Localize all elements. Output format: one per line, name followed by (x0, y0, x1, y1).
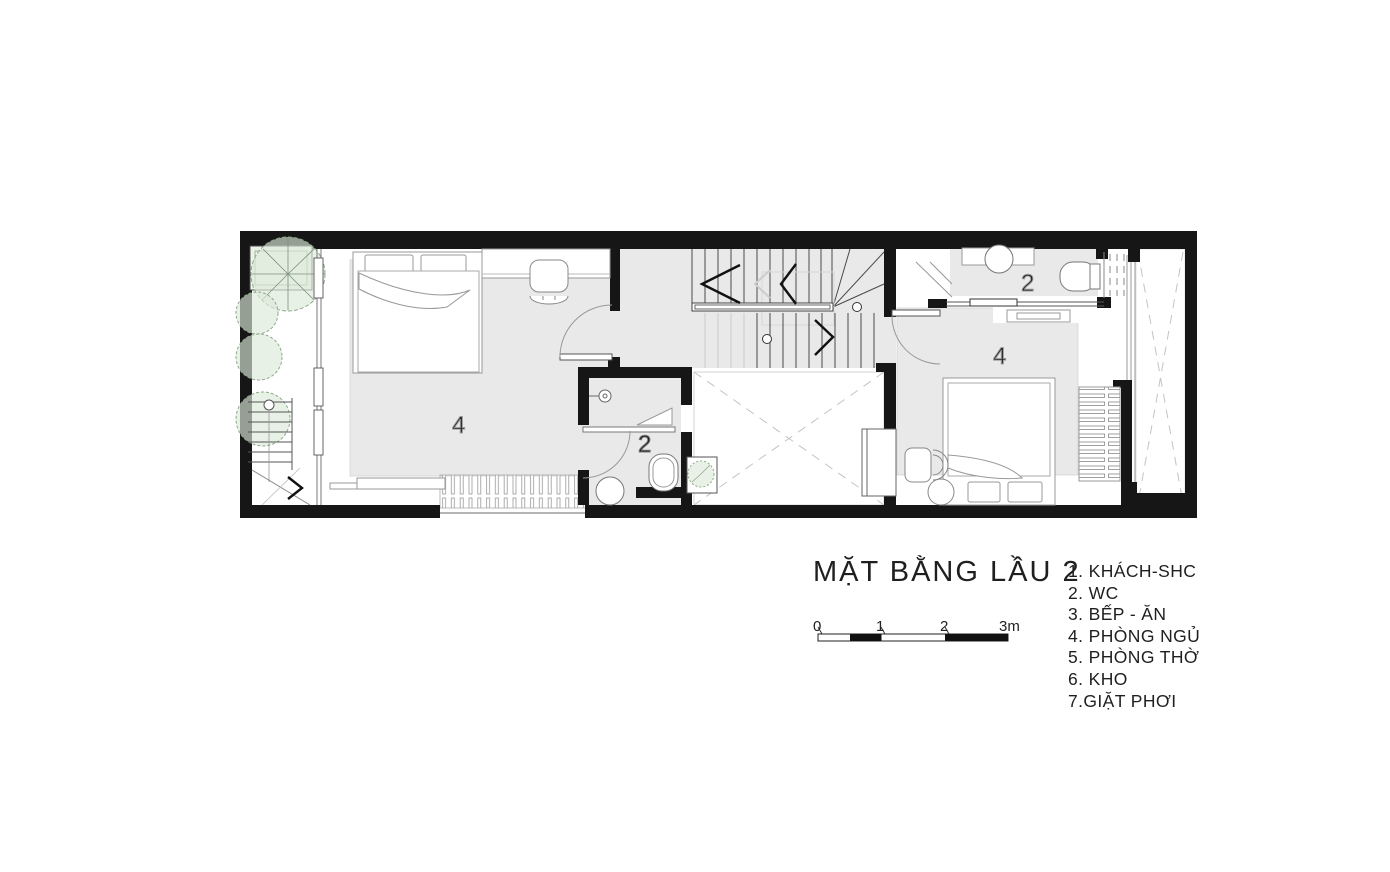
wall-block-window-bottom (1121, 482, 1137, 505)
tree-icon (236, 334, 282, 380)
legend-item: 6. KHO (1068, 669, 1200, 691)
scale-label-1: 1 (876, 618, 884, 635)
floor-door-gap-right (884, 317, 896, 365)
glass-wall-shelf (946, 299, 1104, 306)
toilet-icon (1060, 262, 1100, 291)
toilet-icon (649, 454, 678, 491)
window-wall-garden (314, 249, 323, 505)
legend-item: 4. PHÒNG NGỦ (1068, 626, 1200, 648)
legend-item: 2. WC (1068, 583, 1200, 605)
shower-glass (916, 262, 952, 297)
wall-stair-hall-right (884, 249, 896, 317)
low-cabinet (1007, 310, 1070, 322)
room-label-wc-right: 2 (1021, 270, 1034, 297)
scale-label-2: 2 (940, 618, 948, 635)
room-label-bedroom-right: 4 (993, 343, 1006, 370)
wall-pier-bedroom-left (610, 249, 620, 311)
wall-bottom-left (240, 505, 440, 518)
legend-item: 1. KHÁCH-SHC (1068, 561, 1200, 583)
room-label-bedroom-left: 4 (452, 412, 465, 439)
console-shelf (330, 478, 445, 489)
floor-plan-drawing: 4 (0, 0, 1390, 872)
legend-item: 5. PHÒNG THỜ (1068, 647, 1200, 669)
wall-desk-upper (884, 365, 896, 430)
wall-wc-small-top (578, 367, 692, 378)
stair-newel (853, 303, 862, 312)
wall-block-window-top (1128, 249, 1140, 262)
wall-bottom-mid (585, 505, 1140, 518)
louver-wall (440, 475, 586, 513)
sink-icon (596, 477, 624, 505)
stair-handrail (692, 303, 833, 311)
wardrobe (1079, 387, 1120, 481)
wall-wc-small-right-a (681, 378, 692, 405)
wall-stub-bedroom-right (928, 299, 947, 308)
floor-plan-page: 4 (0, 0, 1390, 872)
bed-right (943, 378, 1055, 505)
pillow (421, 255, 466, 272)
tree-icon (236, 292, 278, 334)
void-center (694, 372, 884, 505)
scale-bar: 0 1 2 3m (813, 618, 1020, 641)
room-label-wc-small: 2 (638, 431, 651, 458)
legend-item: 7.GIẶT PHƠI (1068, 691, 1200, 713)
wall-right (1185, 249, 1197, 505)
sink-icon (985, 245, 1013, 273)
wall-wardrobe-right (1121, 380, 1132, 482)
pillow (968, 482, 1000, 502)
desk-niche (862, 429, 896, 496)
stair-newel (763, 335, 772, 344)
glass-partition (583, 427, 675, 432)
pillow (365, 255, 413, 272)
bed-left (353, 252, 482, 373)
wall-bottom-right (1130, 493, 1197, 518)
page-title: MẶT BẰNG LẦU 2 (813, 556, 1081, 589)
potted-plant-icon (687, 457, 717, 493)
scale-label-0: 0 (813, 618, 821, 635)
scale-label-3m: 3m (999, 618, 1020, 635)
room-legend: 1. KHÁCH-SHC 2. WC 3. BẾP - ĂN 4. PHÒNG … (1068, 561, 1200, 712)
office-chair-icon (530, 260, 568, 304)
pillow (1008, 482, 1042, 502)
tree-icon (236, 392, 290, 446)
wall-wc-small-left-b (578, 470, 589, 505)
legend-item: 3. BẾP - ĂN (1068, 604, 1200, 626)
stool-icon (928, 479, 954, 505)
void-right (1136, 249, 1185, 505)
wall-top (240, 231, 1197, 249)
wall-wc-small-left-a (578, 378, 589, 425)
wall-block-wc-right-top (1096, 249, 1108, 259)
